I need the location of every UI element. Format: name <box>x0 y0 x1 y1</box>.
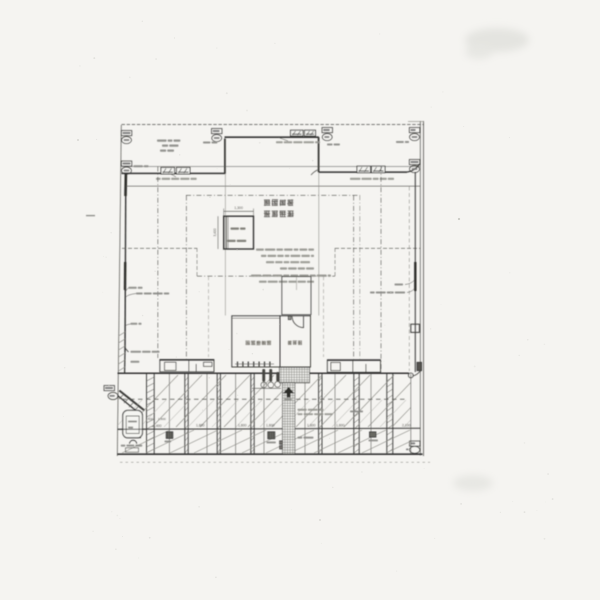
svg-text:1,800: 1,800 <box>238 424 247 428</box>
svg-text:1,800: 1,800 <box>158 417 166 421</box>
svg-text:3,400: 3,400 <box>213 228 217 236</box>
svg-text:1,300: 1,300 <box>234 206 243 210</box>
svg-text:1,800: 1,800 <box>266 424 275 428</box>
svg-text:1,800: 1,800 <box>196 424 205 428</box>
svg-text:2,400: 2,400 <box>153 424 162 428</box>
svg-text:1,800: 1,800 <box>307 424 316 428</box>
svg-text:1,800: 1,800 <box>336 424 345 428</box>
svg-text:900: 900 <box>148 417 153 421</box>
svg-text:2,100: 2,100 <box>402 424 411 428</box>
